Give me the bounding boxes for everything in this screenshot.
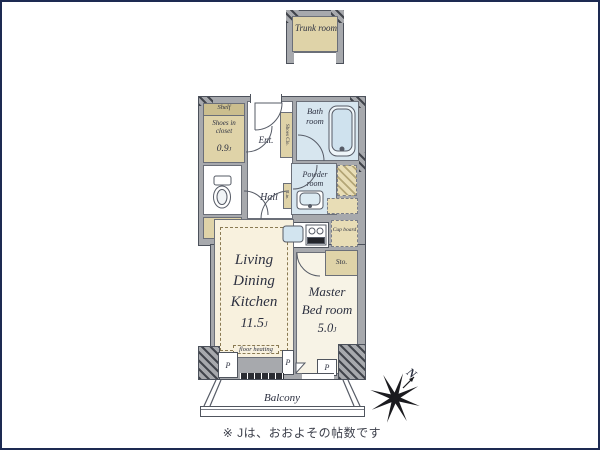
bath-door bbox=[298, 135, 324, 161]
stove-icon bbox=[306, 225, 326, 245]
bedroom-door bbox=[297, 253, 320, 276]
vent-triangle bbox=[296, 363, 305, 373]
bathtub-icon bbox=[329, 106, 355, 156]
footnote: ※ Jは、おおよその帖数です bbox=[152, 424, 452, 441]
floorplan-page: Trunk room Shelf Shoes in closet 0.9J St… bbox=[0, 0, 600, 450]
door-swings bbox=[244, 103, 324, 276]
plan-overlay bbox=[2, 2, 600, 450]
toilet-icon bbox=[214, 176, 232, 208]
balcony-struts bbox=[204, 380, 360, 406]
kitchen-sink-icon bbox=[283, 226, 303, 242]
powder-door bbox=[293, 165, 317, 189]
sink-icon bbox=[297, 191, 323, 209]
hall-door bbox=[261, 191, 289, 219]
compass-star bbox=[362, 365, 428, 431]
entrance-door bbox=[255, 103, 282, 130]
toilet-door bbox=[244, 191, 268, 215]
